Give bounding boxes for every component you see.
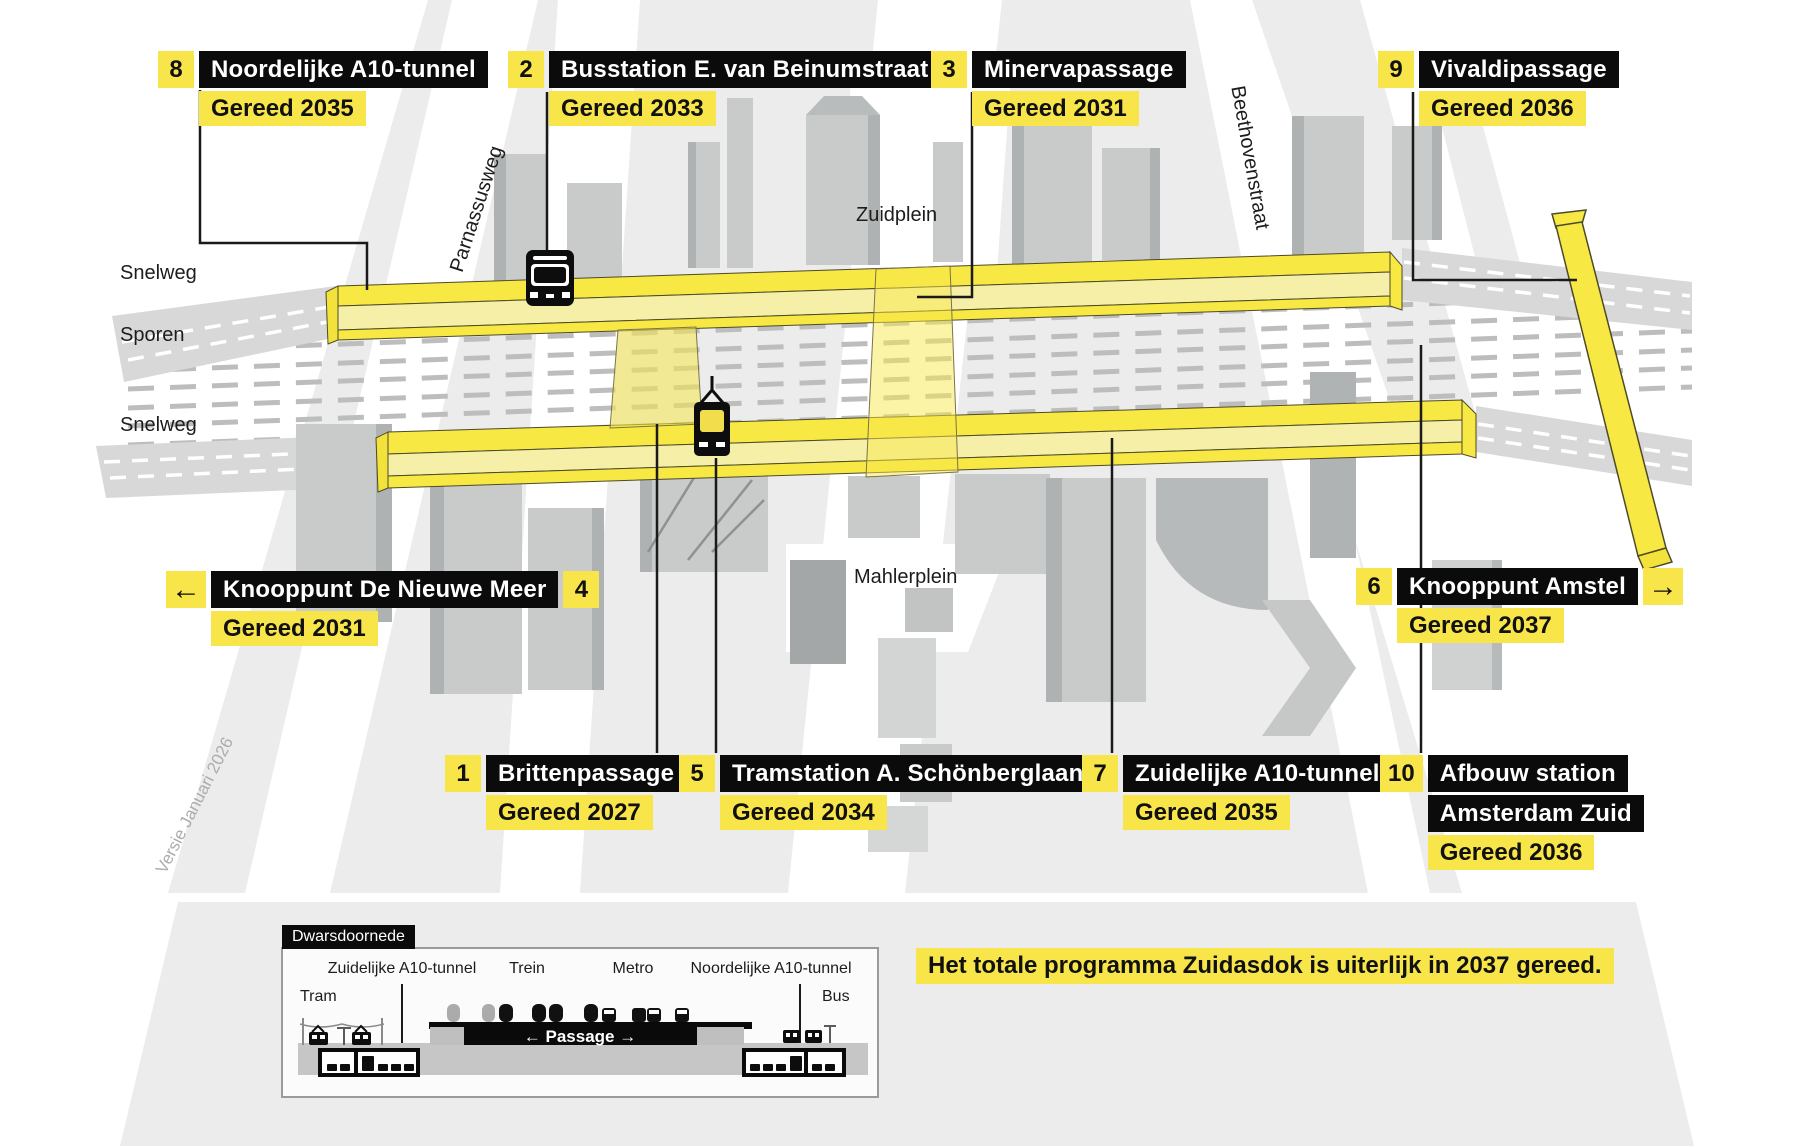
callout-status: Gereed 2037 <box>1397 608 1564 643</box>
callout-status: Gereed 2035 <box>199 91 366 126</box>
callout-status: Gereed 2033 <box>549 91 716 126</box>
callout-number: 1 <box>445 755 481 792</box>
callout-number: 9 <box>1378 51 1414 88</box>
legend-passage-label: ← Passage → <box>524 1027 636 1047</box>
label-snelweg-top: Snelweg <box>120 262 197 285</box>
callout-status: Gereed 2027 <box>486 795 653 830</box>
callout-title: Tramstation A. Schönberglaan <box>720 755 1095 792</box>
callout-9: 9 Vivaldipassage Gereed 2036 <box>1378 51 1619 126</box>
label-zuidplein: Zuidplein <box>856 204 937 227</box>
callout-number: 6 <box>1356 568 1392 605</box>
callout-status: Gereed 2036 <box>1419 91 1586 126</box>
footer-note: Het totale programma Zuidasdok is uiterl… <box>916 948 1614 984</box>
callout-title: Noordelijke A10-tunnel <box>199 51 488 88</box>
legend-label-metro: Metro <box>613 960 654 978</box>
callout-3: 3 Minervapassage Gereed 2031 <box>931 51 1186 126</box>
callout-status: Gereed 2036 <box>1428 835 1595 870</box>
legend-label-tram: Tram <box>300 988 337 1006</box>
callout-title: Minervapassage <box>972 51 1186 88</box>
callout-title: Zuidelijke A10-tunnel <box>1123 755 1392 792</box>
callout-6: 6 Knooppunt Amstel → Gereed 2037 <box>1356 568 1683 643</box>
zuidasdok-infographic: Snelweg Sporen Snelweg Parnassusweg Zuid… <box>0 0 1800 1146</box>
callout-number: 8 <box>158 51 194 88</box>
callout-number: 4 <box>563 571 599 608</box>
callout-number: 7 <box>1082 755 1118 792</box>
callout-7: 7 Zuidelijke A10-tunnel Gereed 2035 <box>1082 755 1392 830</box>
callout-title: Brittenpassage <box>486 755 686 792</box>
bus-icon <box>526 250 574 306</box>
legend-label-trein: Trein <box>509 960 545 978</box>
callout-title: Vivaldipassage <box>1419 51 1619 88</box>
legend-noord-tunnel-box <box>744 1050 844 1075</box>
arrow-left-icon: ← <box>166 571 206 608</box>
callout-status: Gereed 2035 <box>1123 795 1290 830</box>
callout-4: ← Knooppunt De Nieuwe Meer 4 Gereed 2031 <box>166 571 599 646</box>
legend-label-noordelijke-tunnel: Noordelijke A10-tunnel <box>691 960 852 978</box>
callout-1: 1 Brittenpassage Gereed 2027 <box>445 755 686 830</box>
callout-5: 5 Tramstation A. Schönberglaan Gereed 20… <box>679 755 1095 830</box>
callout-title: Afbouw station <box>1428 755 1628 792</box>
legend-zuid-tunnel-box <box>320 1050 418 1075</box>
callout-8: 8 Noordelijke A10-tunnel Gereed 2035 <box>158 51 488 126</box>
callout-2: 2 Busstation E. van Beinumstraat Gereed … <box>508 51 940 126</box>
callout-10: 10 Afbouw station Amsterdam Zuid Gereed … <box>1380 755 1644 870</box>
callout-title: Knooppunt De Nieuwe Meer <box>211 571 558 608</box>
legend-label-zuidelijke-tunnel: Zuidelijke A10-tunnel <box>328 960 477 978</box>
callout-status: Gereed 2034 <box>720 795 887 830</box>
callout-title: Busstation E. van Beinumstraat <box>549 51 940 88</box>
callout-title-line2: Amsterdam Zuid <box>1428 795 1644 832</box>
callout-number: 5 <box>679 755 715 792</box>
arrow-right-icon: → <box>1643 568 1683 605</box>
callout-status: Gereed 2031 <box>972 91 1139 126</box>
label-mahlerplein: Mahlerplein <box>854 566 957 589</box>
callout-number: 2 <box>508 51 544 88</box>
callout-status: Gereed 2031 <box>211 611 378 646</box>
callout-number: 3 <box>931 51 967 88</box>
legend-label-bus: Bus <box>822 988 850 1006</box>
label-sporen: Sporen <box>120 324 185 347</box>
callout-number: 10 <box>1380 755 1423 792</box>
callout-title: Knooppunt Amstel <box>1397 568 1638 605</box>
legend-title: Dwarsdoornede <box>282 925 415 949</box>
label-snelweg-bottom: Snelweg <box>120 414 197 437</box>
brittenpassage-shape <box>610 327 702 428</box>
